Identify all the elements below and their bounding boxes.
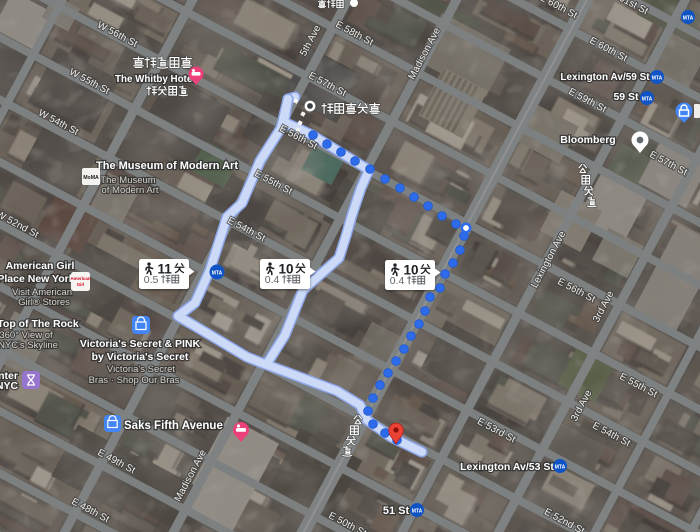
svg-text:59 St: 59 St [613, 91, 639, 103]
svg-text:Lexington Av/53 St: Lexington Av/53 St [460, 461, 554, 473]
svg-text:NYC: NYC [0, 380, 19, 392]
svg-text:NYC's Skyline: NYC's Skyline [0, 340, 58, 351]
svg-text:MTA: MTA [212, 271, 223, 277]
svg-text:11: 11 [158, 262, 173, 277]
svg-text:0.5: 0.5 [144, 274, 159, 286]
svg-text:10: 10 [404, 263, 419, 278]
svg-text:The Museum of Modern Art: The Museum of Modern Art [96, 160, 238, 172]
svg-text:MTA: MTA [652, 76, 663, 82]
svg-text:Place New York: Place New York [0, 273, 75, 285]
svg-text:The Whitby Hotel: The Whitby Hotel [115, 74, 195, 85]
svg-text:Lexington Av/59 St: Lexington Av/59 St [560, 72, 650, 83]
svg-text:Top of The Rock: Top of The Rock [0, 318, 79, 330]
svg-text:0.4: 0.4 [265, 274, 280, 286]
svg-text:0.4: 0.4 [390, 275, 405, 287]
svg-text:of Modern Art: of Modern Art [101, 185, 158, 196]
svg-text:by Victoria's Secret: by Victoria's Secret [92, 351, 189, 363]
svg-text:Bras · Shop Our Bras: Bras · Shop Our Bras [89, 375, 180, 386]
svg-text:American: American [70, 276, 90, 281]
svg-text:10: 10 [279, 262, 294, 277]
svg-text:Saks Fifth Avenue: Saks Fifth Avenue [124, 420, 223, 432]
svg-text:Bloomberg: Bloomberg [560, 134, 615, 146]
svg-text:Girl® Stores: Girl® Stores [18, 297, 70, 308]
svg-text:MTA: MTA [555, 465, 566, 471]
svg-text:MTA: MTA [683, 16, 694, 22]
svg-text:Girl: Girl [77, 282, 85, 287]
svg-text:Victoria's Secret: Victoria's Secret [107, 364, 176, 375]
svg-text:MoMA: MoMA [83, 175, 99, 181]
svg-text:MTA: MTA [412, 509, 423, 515]
svg-text:51 St: 51 St [383, 505, 410, 517]
svg-text:MTA: MTA [642, 97, 653, 103]
svg-text:American Girl: American Girl [6, 260, 75, 272]
svg-text:Victoria's Secret & PINK: Victoria's Secret & PINK [80, 338, 201, 350]
